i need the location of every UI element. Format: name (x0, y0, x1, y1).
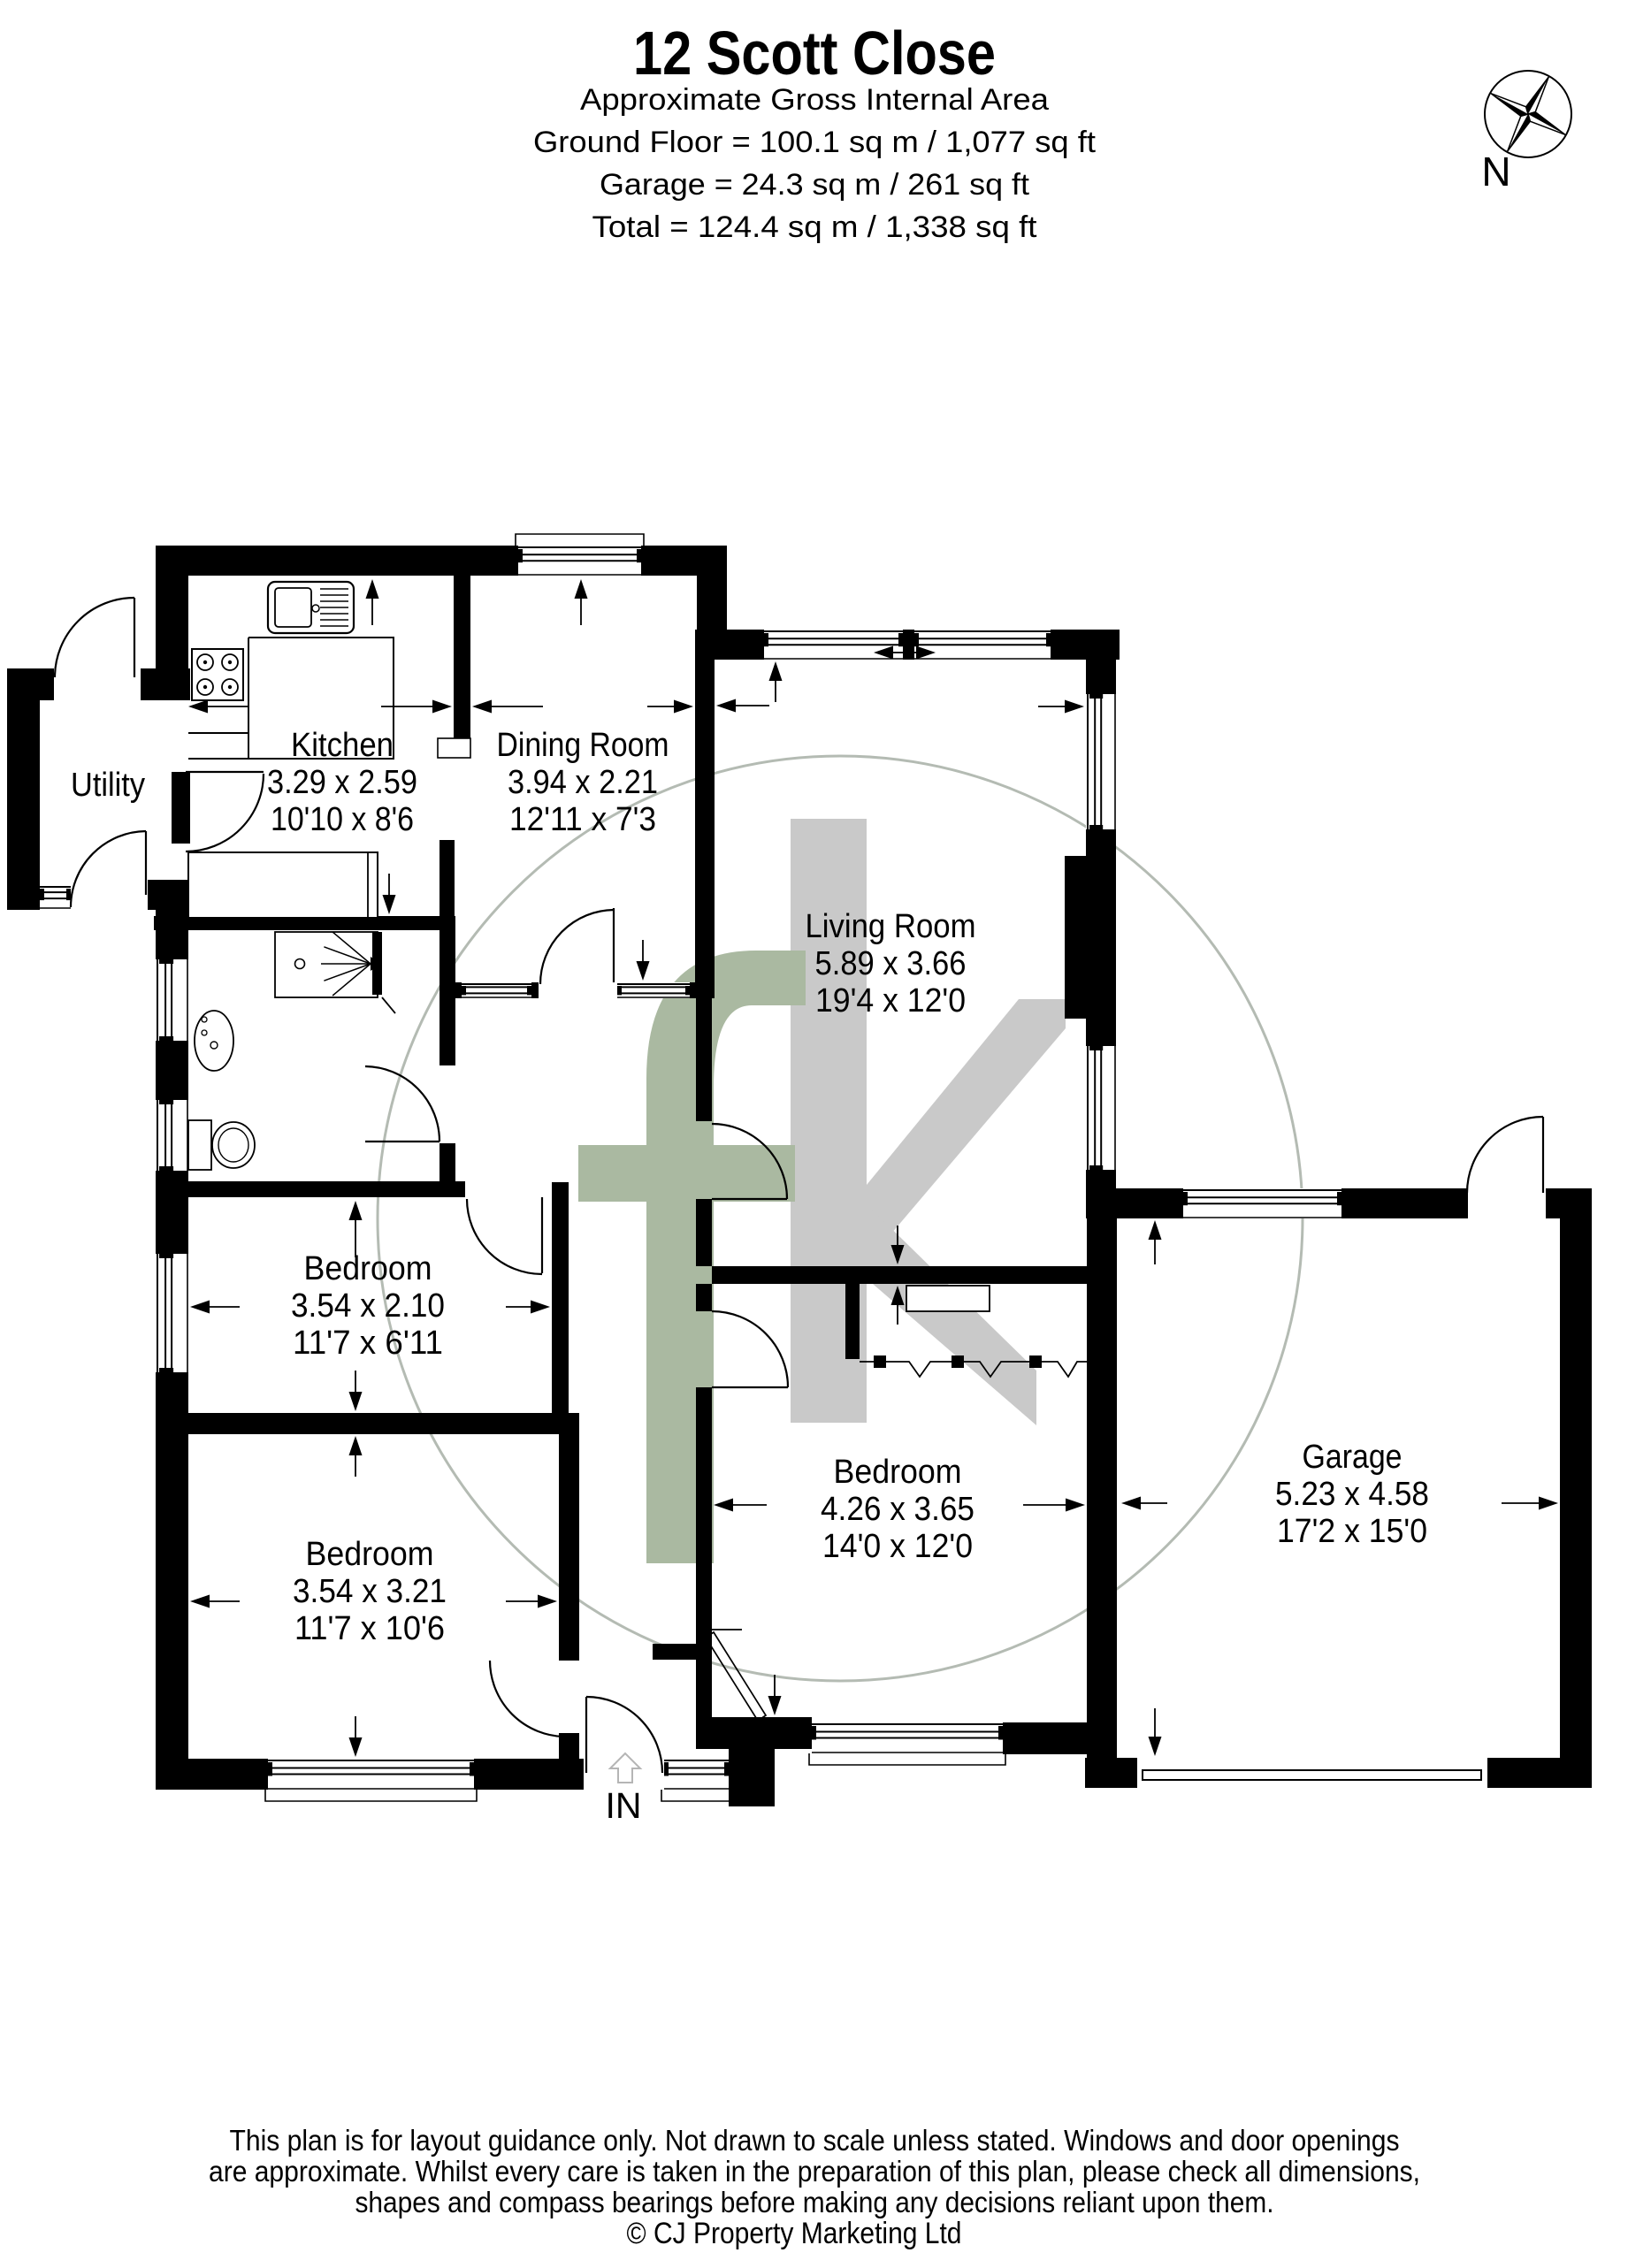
svg-text:Utility: Utility (71, 767, 145, 804)
svg-text:5.23 x 4.58: 5.23 x 4.58 (1275, 1476, 1429, 1513)
svg-text:© CJ Property Marketing Ltd: © CJ Property Marketing Ltd (627, 2217, 962, 2250)
svg-text:3.29 x 2.59: 3.29 x 2.59 (267, 764, 417, 801)
svg-text:14'0 x 12'0: 14'0 x 12'0 (822, 1528, 973, 1565)
svg-text:Bedroom: Bedroom (304, 1250, 432, 1287)
svg-text:Kitchen: Kitchen (291, 727, 394, 764)
svg-text:shapes and compass bearings be: shapes and compass bearings before makin… (355, 2186, 1274, 2218)
svg-text:Total = 124.4 sq m / 1,338 sq: Total = 124.4 sq m / 1,338 sq ft (592, 210, 1037, 244)
svg-text:IN: IN (606, 1785, 642, 1826)
svg-text:Bedroom: Bedroom (306, 1536, 434, 1573)
svg-text:3.54 x 3.21: 3.54 x 3.21 (293, 1573, 447, 1610)
svg-text:12 Scott Close: 12 Scott Close (633, 19, 996, 88)
svg-text:Approximate Gross Internal Are: Approximate Gross Internal Area (580, 83, 1050, 117)
svg-text:12'11 x 7'3: 12'11 x 7'3 (509, 801, 656, 838)
svg-text:19'4 x 12'0: 19'4 x 12'0 (815, 982, 966, 1019)
svg-text:10'10 x 8'6: 10'10 x 8'6 (271, 801, 414, 838)
svg-text:Dining Room: Dining Room (497, 727, 669, 764)
svg-text:Garage: Garage (1303, 1439, 1403, 1476)
svg-text:11'7 x 10'6: 11'7 x 10'6 (294, 1610, 445, 1647)
svg-text:11'7 x 6'11: 11'7 x 6'11 (293, 1325, 443, 1362)
svg-text:5.89 x 3.66: 5.89 x 3.66 (815, 945, 967, 982)
svg-text:N: N (1481, 149, 1510, 195)
svg-text:Bedroom: Bedroom (834, 1454, 962, 1491)
svg-text:17'2 x 15'0: 17'2 x 15'0 (1277, 1513, 1427, 1550)
svg-text:Ground Floor = 100.1 sq m / 1,: Ground Floor = 100.1 sq m / 1,077 sq ft (533, 126, 1096, 159)
svg-text:Living Room: Living Room (806, 908, 976, 945)
svg-text:4.26 x 3.65: 4.26 x 3.65 (821, 1491, 975, 1528)
svg-text:Garage = 24.3 sq m / 261 sq ft: Garage = 24.3 sq m / 261 sq ft (600, 168, 1029, 202)
svg-text:3.94 x 2.21: 3.94 x 2.21 (508, 764, 658, 801)
svg-text:This plan is for layout guidan: This plan is for layout guidance only. N… (230, 2124, 1400, 2157)
svg-text:are approximate. Whilst every: are approximate. Whilst every care is ta… (209, 2155, 1420, 2188)
svg-text:3.54 x 2.10: 3.54 x 2.10 (291, 1287, 445, 1325)
